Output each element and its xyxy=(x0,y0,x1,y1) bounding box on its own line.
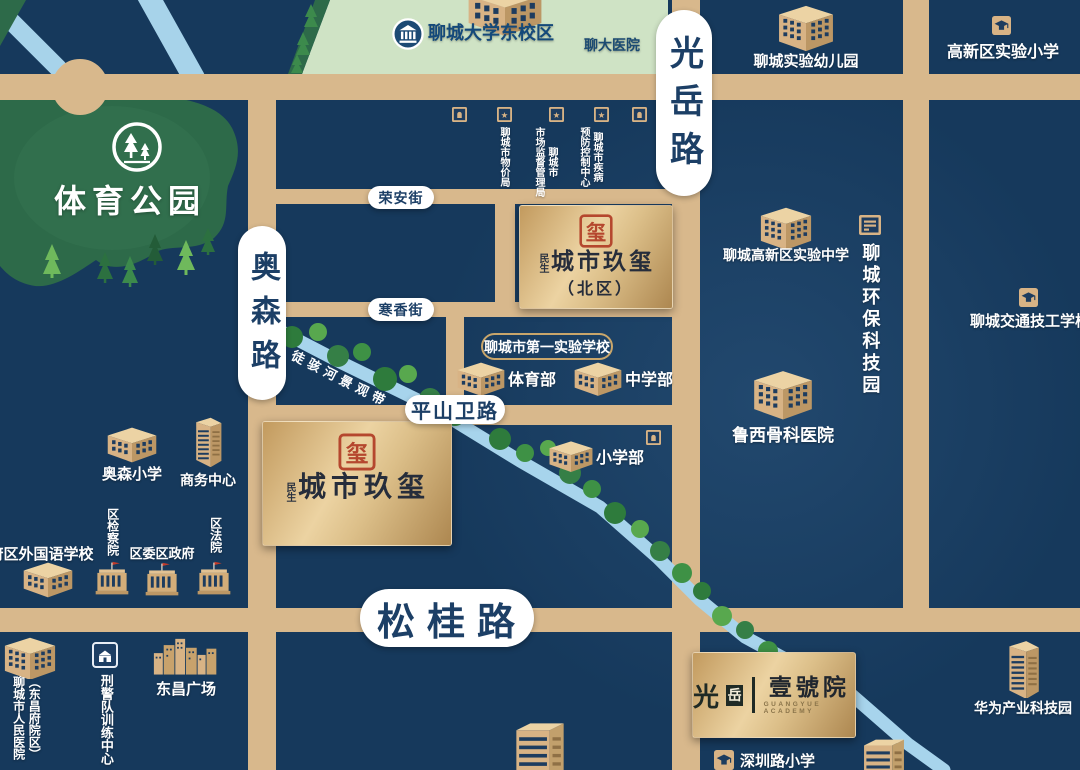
road-east xyxy=(903,0,929,618)
place-label: 奥森小学 xyxy=(92,466,172,484)
project-name-en: GUANGYUE ACADEMY xyxy=(764,701,855,715)
svg-text:玺: 玺 xyxy=(346,442,369,467)
place-label: 聊城市 市场监督管理局 xyxy=(532,127,558,197)
skyline-icon xyxy=(153,637,219,675)
door-icon xyxy=(452,107,467,122)
bank-icon xyxy=(392,18,424,50)
place-label: 聊大医院 xyxy=(572,37,652,54)
road-rongan xyxy=(255,189,700,204)
place-label: 刑警队训练中心 xyxy=(97,674,114,765)
sports-park-label: 体育公园 xyxy=(38,176,222,222)
place-label: 聊城实验幼儿园 xyxy=(744,53,868,71)
place-label: 聊城大学东校区 xyxy=(428,23,578,45)
flat-icon xyxy=(573,360,623,396)
project-plaque-north: 玺 民生 城市玖玺 （北区） xyxy=(519,205,673,309)
place-label: 聊城环保科技园 xyxy=(858,243,881,397)
road-block-north xyxy=(495,189,515,317)
cap-icon xyxy=(714,750,734,770)
place-label: 区委区政府 xyxy=(120,546,204,562)
place-label: 东昌广场 xyxy=(146,681,226,699)
star-icon: ★ xyxy=(594,107,609,122)
campus-edge xyxy=(288,0,330,74)
place-label: 聊城高新区实验中学 xyxy=(718,247,854,264)
street-label-pingshanwei: 平山卫路 xyxy=(405,395,505,424)
svg-text:★: ★ xyxy=(597,109,604,119)
tall2-icon xyxy=(857,736,911,770)
place-label: 东昌府区外国语学校 xyxy=(0,546,97,564)
park-trees-icon xyxy=(111,121,163,173)
place-label: 聊城交通技工学校 xyxy=(948,313,1080,331)
roundabout xyxy=(52,59,108,115)
place-label: 体育部 xyxy=(508,371,566,391)
door-icon xyxy=(646,430,661,445)
brand-label: 民生 xyxy=(537,253,547,273)
gov-icon xyxy=(93,560,131,596)
project-plaque-main: 玺 民生 城市玖玺 xyxy=(262,421,452,546)
street-label-hanxiang: 寒香街 xyxy=(368,298,434,321)
campus-trees xyxy=(291,4,318,73)
brand-label: 民生 xyxy=(284,482,294,502)
cap-icon xyxy=(992,16,1011,35)
road-label-songgui: 松桂路 xyxy=(360,589,534,647)
academy-logo-divider xyxy=(752,677,754,713)
place-label: 高新区实验小学 xyxy=(938,43,1068,63)
large-icon xyxy=(752,368,814,419)
flat-icon xyxy=(548,439,594,472)
place-label: 区法院 xyxy=(207,517,223,553)
place-label: 华为产业科技园 xyxy=(958,700,1080,717)
green-wedge xyxy=(0,0,26,46)
flat-icon xyxy=(106,425,158,462)
gov-icon xyxy=(195,560,233,596)
large-icon xyxy=(759,205,813,250)
place-label: （东昌府院区） 聊城市人民医院 xyxy=(10,676,41,760)
project-name: 城市玖玺 xyxy=(298,474,430,502)
svg-text:★: ★ xyxy=(552,109,559,119)
academy-logo-left: 光 xyxy=(693,677,719,714)
river-label: 徒骇河景观带 xyxy=(288,345,393,411)
street-label-rongan: 荣安街 xyxy=(368,186,434,209)
park-trees xyxy=(43,228,215,287)
seal-icon: 玺 xyxy=(338,433,376,471)
star-icon: ★ xyxy=(549,107,564,122)
road-label-aosen: 奥森路 xyxy=(238,226,286,400)
map-canvas: 徒骇河景观带 体育公园 玺 民生 城市玖玺 （北区） 玺 民生 城 xyxy=(0,0,1080,770)
place-label: 中学部 xyxy=(625,371,683,391)
star-icon: ★ xyxy=(497,107,512,122)
cap-icon xyxy=(1019,288,1038,307)
place-label: 鲁西骨科医院 xyxy=(721,426,845,447)
road-label-guangyue: 光岳路 xyxy=(656,10,712,196)
tall2-icon xyxy=(508,719,572,770)
project-sub: （北区） xyxy=(558,275,634,299)
place-label: 区检察院 xyxy=(104,508,120,556)
project-name: 壹號院 xyxy=(769,676,850,699)
place-label: 商务中心 xyxy=(168,472,248,489)
place-label: 小学部 xyxy=(596,449,654,469)
large-icon xyxy=(3,635,57,680)
svg-text:玺: 玺 xyxy=(586,222,606,245)
project-plaque-academy: 光 岳 壹號院 GUANGYUE ACADEMY xyxy=(692,652,856,738)
env-icon xyxy=(859,215,881,235)
academy-logo-right: 岳 xyxy=(726,685,743,706)
police-icon xyxy=(92,642,118,668)
project-name: 城市玖玺 xyxy=(551,250,655,273)
gov-icon xyxy=(143,561,181,597)
first-experimental-school-box: 聊城市第一实验学校 xyxy=(481,333,613,360)
place-label: 深圳路小学 xyxy=(740,753,832,770)
large-icon xyxy=(777,3,835,51)
tall-icon xyxy=(189,415,225,467)
place-label: 聊城市疾病 预防控制中心 xyxy=(577,127,603,187)
svg-text:★: ★ xyxy=(500,109,507,119)
tall-icon xyxy=(1001,638,1043,699)
place-label: 聊城市物价局 xyxy=(497,127,510,187)
door-icon xyxy=(632,107,647,122)
seal-icon: 玺 xyxy=(579,214,613,248)
flat-icon xyxy=(22,560,74,597)
flat-icon xyxy=(456,360,506,396)
stream-lines xyxy=(0,0,194,271)
